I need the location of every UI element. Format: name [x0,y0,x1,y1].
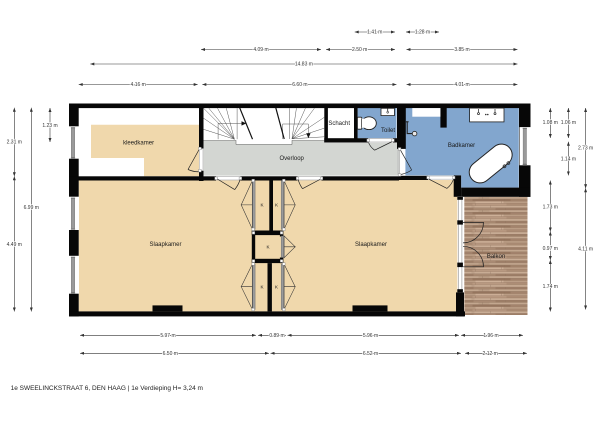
svg-text:6.60 m: 6.60 m [292,82,307,88]
svg-text:1.73 m: 1.73 m [543,204,558,210]
svg-text:4.16 m: 4.16 m [131,82,146,88]
svg-text:1.23 m: 1.23 m [42,123,57,129]
svg-text:1.96 m: 1.96 m [483,333,498,339]
svg-text:Overloop: Overloop [280,156,305,162]
svg-text:5.97 m: 5.97 m [160,333,175,339]
svg-text:Schacht: Schacht [328,121,350,127]
svg-text:1e SWEELINCKSTRAAT 6, DEN HAAG: 1e SWEELINCKSTRAAT 6, DEN HAAG | 1e Verd… [11,385,203,392]
svg-text:1.28 m: 1.28 m [415,30,430,36]
svg-text:1.08 m: 1.08 m [543,120,558,126]
svg-text:4.09 m: 4.09 m [253,47,268,53]
svg-text:5.96 m: 5.96 m [363,333,378,339]
svg-text:Toilet: Toilet [381,128,395,134]
svg-text:4.01 m: 4.01 m [454,82,469,88]
svg-text:6.50 m: 6.50 m [163,351,178,357]
svg-text:4.49 m: 4.49 m [7,242,22,248]
svg-text:Balkon: Balkon [487,254,505,260]
svg-text:1.74 m: 1.74 m [543,284,558,290]
svg-text:2.50 m: 2.50 m [352,47,367,53]
svg-text:2.73 m: 2.73 m [578,146,593,152]
svg-text:Slaapkamer: Slaapkamer [355,242,387,248]
svg-text:6.52 m: 6.52 m [363,351,378,357]
svg-text:1.14 m: 1.14 m [561,156,576,162]
svg-text:1.06 m: 1.06 m [561,120,576,126]
svg-text:1.41 m: 1.41 m [367,30,382,36]
svg-text:2.31 m: 2.31 m [7,140,22,146]
svg-text:Badkamer: Badkamer [448,143,475,149]
svg-text:2.12 m: 2.12 m [483,351,498,357]
svg-text:4.11 m: 4.11 m [578,247,593,253]
svg-text:14.83 m: 14.83 m [295,62,313,68]
svg-text:0.89 m: 0.89 m [269,333,284,339]
svg-text:Slaapkamer: Slaapkamer [149,242,181,248]
svg-text:3.85 m: 3.85 m [454,47,469,53]
svg-text:kleedkamer: kleedkamer [123,140,154,146]
svg-text:6.99 m: 6.99 m [24,205,39,211]
svg-text:0.97 m: 0.97 m [543,246,558,252]
